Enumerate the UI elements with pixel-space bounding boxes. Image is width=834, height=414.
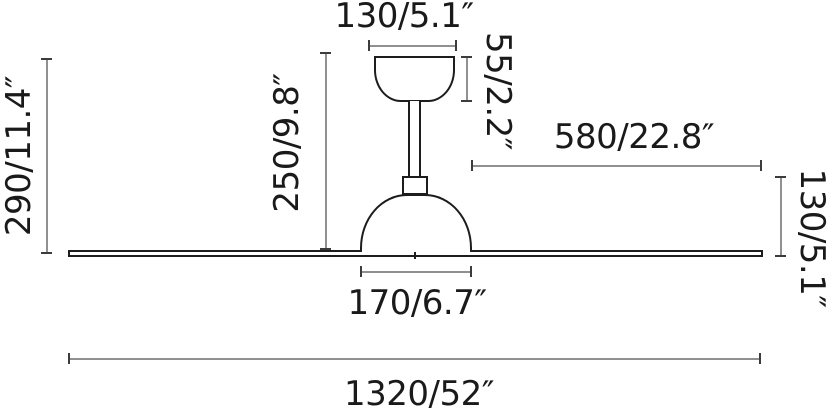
dim-tick: [759, 353, 761, 364]
fan-downrod: [408, 101, 421, 177]
dim-label-blade-length: 580/22.8″: [554, 117, 714, 157]
dim-tick: [461, 56, 472, 58]
dim-label-canopy-height: 55/2.2″: [478, 32, 518, 150]
dim-tick: [775, 176, 786, 178]
dim-tick: [320, 52, 331, 54]
dim-tick: [471, 160, 473, 171]
dim-tick: [470, 266, 472, 277]
fan-canopy: [374, 56, 455, 102]
dim-line-total-diameter: [69, 358, 761, 360]
fan-dimension-diagram: 130/5.1″ 55/2.2″ 290/11.4″ 250/9.8″ 580/…: [0, 0, 834, 414]
dim-tick: [455, 40, 457, 51]
fan-rod-coupler: [402, 176, 428, 195]
dim-label-canopy-width: 130/5.1″: [334, 0, 473, 36]
dim-tick: [41, 58, 52, 60]
dim-tick: [760, 160, 762, 171]
dim-tick: [368, 40, 370, 51]
dim-label-motor-height: 130/5.1″: [792, 168, 832, 307]
dim-line-motor-height: [780, 177, 782, 257]
dim-line-total-height: [46, 59, 48, 254]
blade-center-seam: [414, 252, 416, 259]
dim-line-blade-length: [472, 165, 762, 167]
dim-label-rod-height: 250/9.8″: [267, 73, 307, 212]
dim-line-rod-height: [325, 53, 327, 250]
dim-tick: [68, 353, 70, 364]
dim-line-canopy-width: [369, 45, 457, 47]
fan-motor-housing: [360, 194, 472, 252]
dim-tick: [41, 252, 52, 254]
dim-line-canopy-height: [466, 57, 468, 102]
dim-label-motor-width: 170/6.7″: [347, 283, 486, 323]
dim-tick: [461, 100, 472, 102]
dim-tick: [775, 255, 786, 257]
dim-tick: [320, 248, 331, 250]
dim-label-total-height: 290/11.4″: [0, 76, 39, 236]
dim-label-total-diameter: 1320/52″: [344, 374, 494, 414]
dim-tick: [360, 266, 362, 277]
dim-line-motor-width: [361, 271, 472, 273]
